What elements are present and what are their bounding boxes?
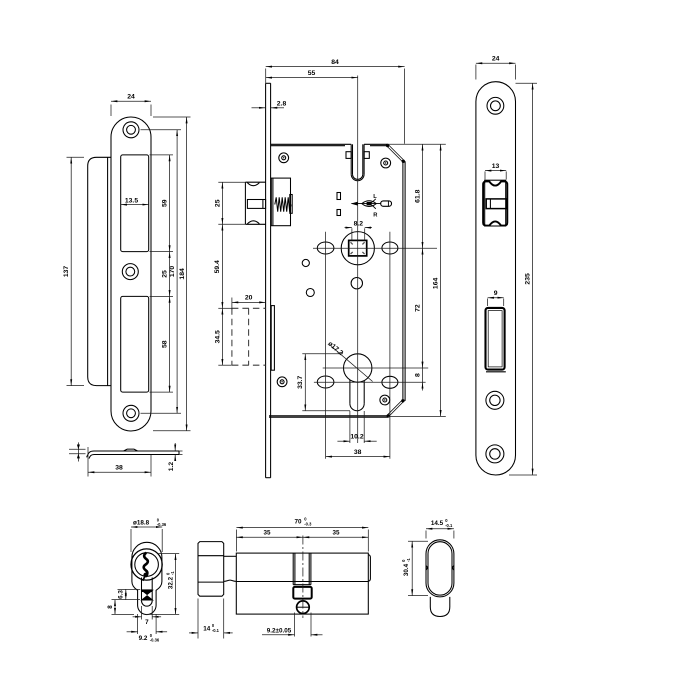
svg-text:-0.36: -0.36	[157, 522, 167, 527]
svg-text:9: 9	[494, 290, 498, 297]
svg-text:8: 8	[107, 605, 114, 609]
svg-text:55: 55	[308, 70, 316, 77]
svg-text:35: 35	[263, 530, 271, 537]
svg-text:34.5: 34.5	[215, 330, 222, 343]
svg-text:14.5: 14.5	[431, 520, 444, 527]
svg-text:61.8: 61.8	[414, 189, 421, 202]
svg-text:20: 20	[245, 295, 253, 302]
svg-text:24: 24	[492, 56, 500, 63]
svg-text:8: 8	[414, 373, 421, 377]
svg-text:9.2±0.05: 9.2±0.05	[267, 628, 292, 635]
svg-text:6.3: 6.3	[117, 590, 124, 599]
svg-text:235: 235	[524, 273, 531, 285]
svg-text:8.2: 8.2	[354, 221, 364, 228]
svg-text:137: 137	[63, 266, 70, 278]
svg-text:38: 38	[354, 449, 362, 456]
svg-text:35: 35	[332, 530, 340, 537]
svg-text:13.5: 13.5	[125, 198, 138, 205]
svg-text:-0.1: -0.1	[445, 523, 453, 528]
svg-text:-0.3: -0.3	[304, 521, 312, 526]
svg-text:164: 164	[432, 278, 439, 290]
svg-text:32.2: 32.2	[168, 576, 175, 589]
svg-text:25: 25	[161, 270, 168, 278]
svg-text:1.2: 1.2	[168, 462, 175, 472]
svg-text:30.4: 30.4	[403, 563, 410, 576]
svg-text:14: 14	[203, 625, 211, 632]
svg-text:-0.36: -0.36	[150, 637, 160, 642]
svg-text:24: 24	[127, 94, 135, 101]
svg-text:84: 84	[331, 59, 339, 66]
svg-text:59: 59	[161, 199, 168, 207]
svg-text:170: 170	[169, 266, 176, 278]
svg-text:58: 58	[161, 340, 168, 348]
svg-text:7: 7	[145, 619, 149, 626]
svg-text:33.7: 33.7	[297, 375, 304, 388]
svg-text:2.8: 2.8	[277, 100, 287, 107]
svg-text:70: 70	[294, 519, 302, 526]
svg-text:13: 13	[492, 163, 500, 170]
svg-text:38: 38	[115, 464, 123, 471]
svg-text:9.2: 9.2	[139, 635, 148, 642]
svg-text:59.4: 59.4	[214, 260, 221, 273]
svg-text:184: 184	[179, 268, 186, 280]
svg-text:-0.1: -0.1	[212, 628, 220, 633]
svg-text:10.2: 10.2	[350, 433, 363, 440]
svg-text:72: 72	[414, 304, 421, 312]
svg-text:ø18.8: ø18.8	[133, 520, 150, 527]
svg-text:25: 25	[215, 199, 222, 207]
